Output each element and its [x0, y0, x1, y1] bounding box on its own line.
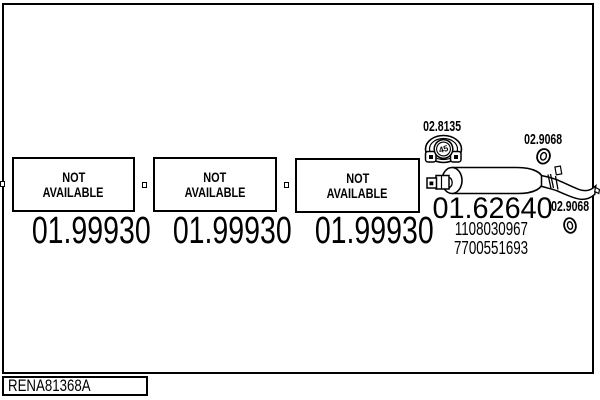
- o-ring-lower-icon: [563, 217, 577, 234]
- footer-code: RENA81368A: [8, 378, 91, 394]
- ring-upper-part-number: 02.9068: [508, 133, 578, 146]
- muffler-oe-number-2: 7700551693: [421, 241, 562, 255]
- footer-code-box: RENA81368A: [2, 376, 148, 396]
- o-ring-upper-icon: [535, 147, 552, 165]
- parts-diagram: NOT AVAILABLE NOT AVAILABLE NOT AVAILABL…: [0, 0, 600, 400]
- muffler-oe-number-1: 1108030967: [421, 222, 562, 236]
- inlet-pipe: [427, 176, 449, 190]
- gasket-part-number: 02.8135: [407, 120, 477, 133]
- flange-gasket-icon: 45: [426, 136, 462, 163]
